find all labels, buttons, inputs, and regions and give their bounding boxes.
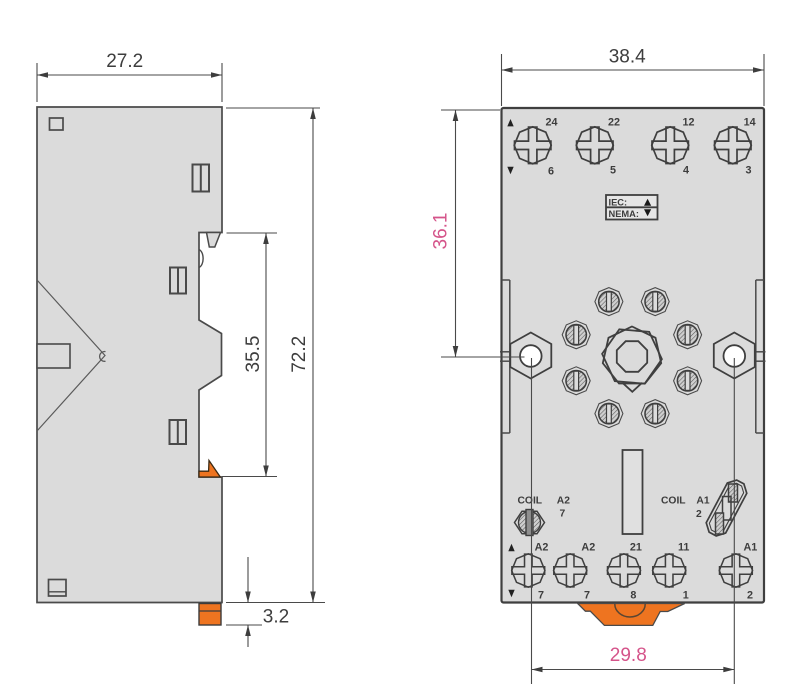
svg-text:2: 2 bbox=[747, 590, 753, 602]
svg-text:35.5: 35.5 bbox=[243, 336, 264, 373]
svg-text:1: 1 bbox=[683, 590, 689, 602]
svg-text:A2: A2 bbox=[581, 542, 595, 554]
svg-text:A2: A2 bbox=[557, 495, 570, 506]
svg-text:29.8: 29.8 bbox=[610, 645, 647, 666]
svg-text:21: 21 bbox=[630, 542, 642, 554]
svg-text:22: 22 bbox=[608, 117, 620, 129]
svg-text:27.2: 27.2 bbox=[106, 51, 143, 72]
svg-text:3.2: 3.2 bbox=[263, 607, 289, 628]
svg-text:COIL: COIL bbox=[518, 495, 543, 506]
svg-text:NEMA:: NEMA: bbox=[609, 209, 639, 219]
svg-text:7: 7 bbox=[538, 590, 544, 602]
svg-text:6: 6 bbox=[548, 165, 554, 177]
svg-text:11: 11 bbox=[678, 542, 689, 554]
svg-text:7: 7 bbox=[560, 509, 566, 520]
svg-text:IEC:: IEC: bbox=[609, 197, 628, 207]
svg-text:8: 8 bbox=[630, 590, 636, 602]
svg-text:14: 14 bbox=[744, 117, 756, 129]
svg-text:3: 3 bbox=[745, 164, 751, 176]
svg-text:24: 24 bbox=[545, 117, 557, 129]
svg-text:2: 2 bbox=[696, 509, 702, 520]
svg-text:7: 7 bbox=[584, 590, 590, 602]
svg-text:5: 5 bbox=[610, 164, 616, 176]
svg-text:12: 12 bbox=[682, 117, 694, 129]
svg-text:A1: A1 bbox=[696, 496, 709, 507]
svg-text:A2: A2 bbox=[535, 542, 549, 554]
svg-text:38.4: 38.4 bbox=[609, 47, 646, 68]
svg-text:A1: A1 bbox=[743, 542, 757, 554]
svg-text:COIL: COIL bbox=[661, 495, 686, 506]
svg-text:36.1: 36.1 bbox=[431, 213, 452, 250]
svg-text:4: 4 bbox=[683, 164, 689, 176]
svg-text:72.2: 72.2 bbox=[289, 336, 310, 373]
